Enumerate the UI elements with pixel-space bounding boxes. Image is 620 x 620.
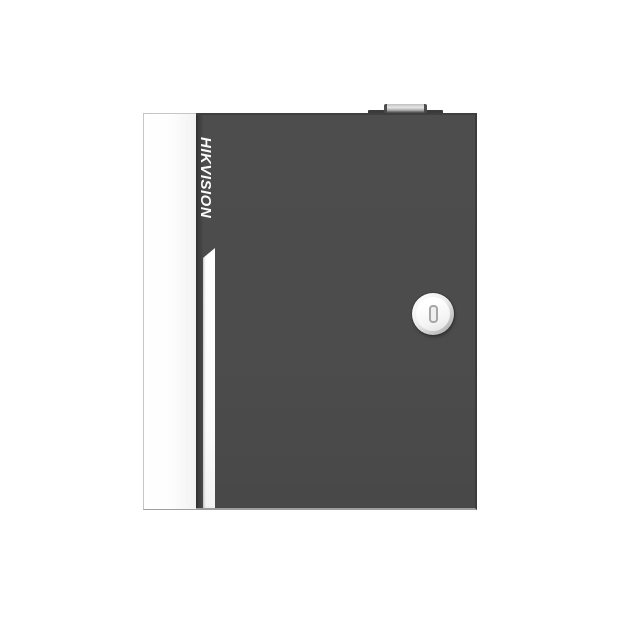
cam-lock — [412, 293, 454, 335]
lock-face — [416, 297, 450, 331]
enclosure-side-panel — [143, 113, 196, 510]
keyhole-slot-icon — [429, 305, 438, 323]
door-accent-stripe — [203, 248, 215, 508]
access-controller-enclosure: HIKVISION — [143, 113, 477, 510]
brand-logo: HIKVISION — [197, 137, 214, 237]
enclosure-door: HIKVISION — [196, 113, 477, 510]
product-photo: HIKVISION — [0, 0, 620, 620]
